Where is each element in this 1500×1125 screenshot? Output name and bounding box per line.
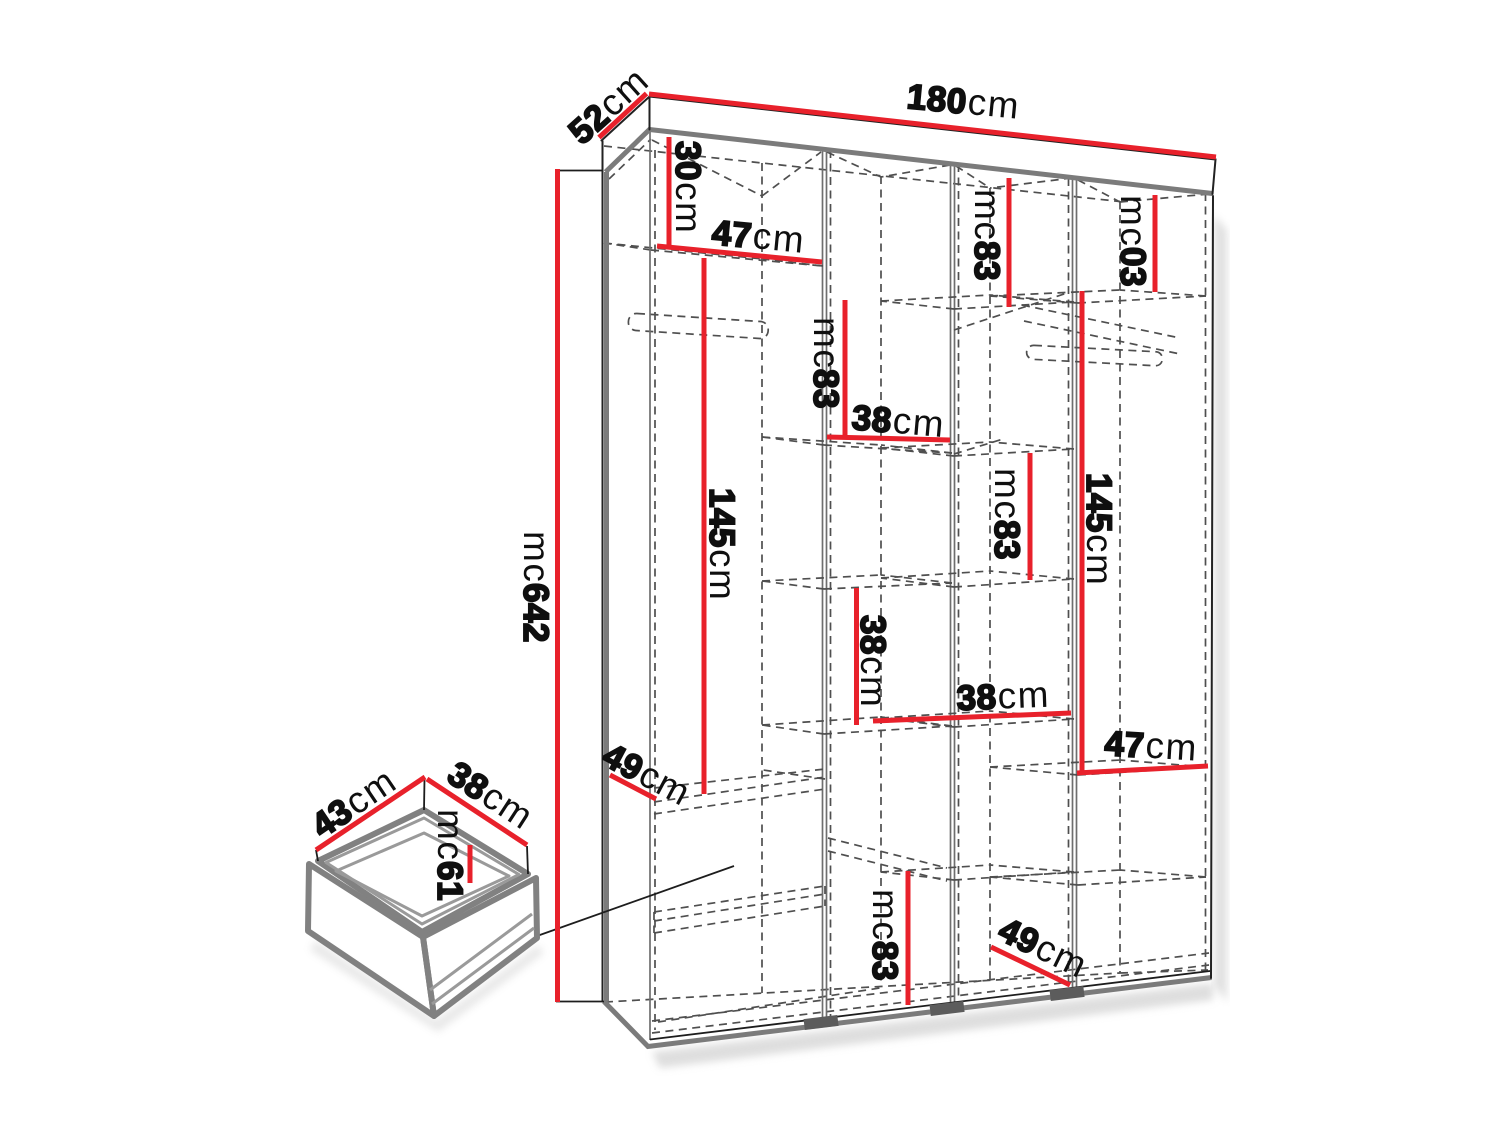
svg-text:cm: cm — [1144, 725, 1199, 769]
svg-text:cm: cm — [1079, 534, 1120, 586]
svg-text:30: 30 — [668, 141, 707, 181]
svg-text:145: 145 — [702, 488, 741, 548]
svg-text:mc: mc — [865, 889, 906, 941]
svg-text:cm: cm — [997, 674, 1051, 717]
svg-text:mc: mc — [806, 317, 847, 369]
svg-text:cm: cm — [702, 549, 743, 601]
svg-text:47: 47 — [1104, 724, 1146, 765]
svg-text:642: 642 — [516, 583, 555, 643]
svg-text:38: 38 — [850, 398, 893, 440]
svg-text:cm: cm — [751, 215, 807, 261]
svg-text:cm: cm — [853, 656, 894, 708]
svg-text:61: 61 — [430, 861, 469, 901]
svg-text:mc: mc — [987, 468, 1028, 520]
svg-text:03: 03 — [1113, 247, 1152, 287]
svg-text:83: 83 — [806, 369, 845, 409]
svg-text:180: 180 — [905, 77, 968, 122]
svg-text:83: 83 — [865, 941, 904, 981]
svg-text:38: 38 — [853, 615, 892, 655]
svg-text:47: 47 — [710, 213, 753, 256]
svg-text:cm: cm — [891, 400, 947, 445]
svg-text:mc: mc — [516, 531, 557, 583]
svg-text:cm: cm — [668, 182, 709, 234]
svg-text:83: 83 — [967, 241, 1006, 281]
svg-text:38: 38 — [956, 678, 997, 718]
svg-text:mc: mc — [967, 189, 1008, 241]
svg-text:mc: mc — [1113, 195, 1154, 247]
svg-text:83: 83 — [987, 520, 1026, 560]
svg-text:cm: cm — [966, 81, 1022, 127]
svg-text:145: 145 — [1079, 473, 1118, 533]
svg-text:mc: mc — [430, 809, 471, 861]
